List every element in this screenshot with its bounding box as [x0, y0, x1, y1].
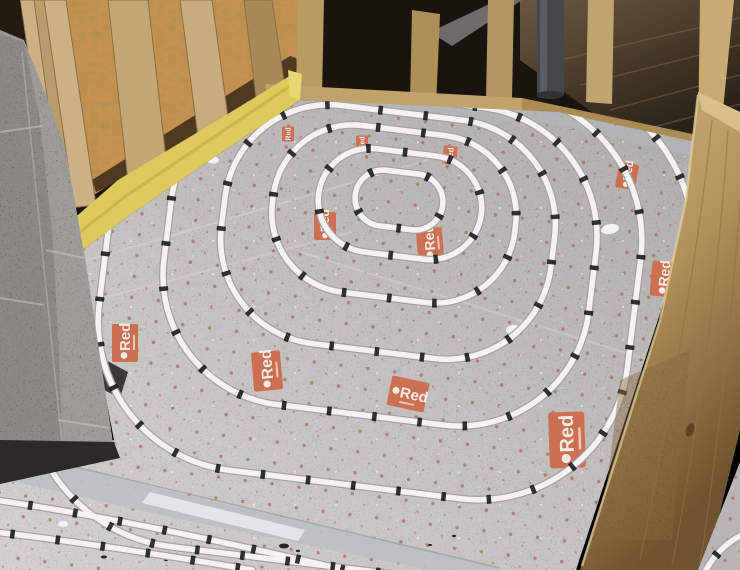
brand-logo: Red [282, 127, 294, 142]
brand-logo: Red [112, 323, 138, 362]
svg-text:Red: Red [286, 127, 293, 140]
svg-text:Red: Red [117, 323, 134, 351]
photo-canvas: Red Red Red Red Red [0, 0, 740, 570]
brand-logo: Red [251, 348, 283, 392]
svg-text:Red: Red [556, 414, 579, 453]
soil-pipe [537, 0, 565, 99]
svg-text:Red: Red [258, 349, 278, 381]
photo-underfloor-heating: Red Red Red Red Red [0, 0, 740, 570]
